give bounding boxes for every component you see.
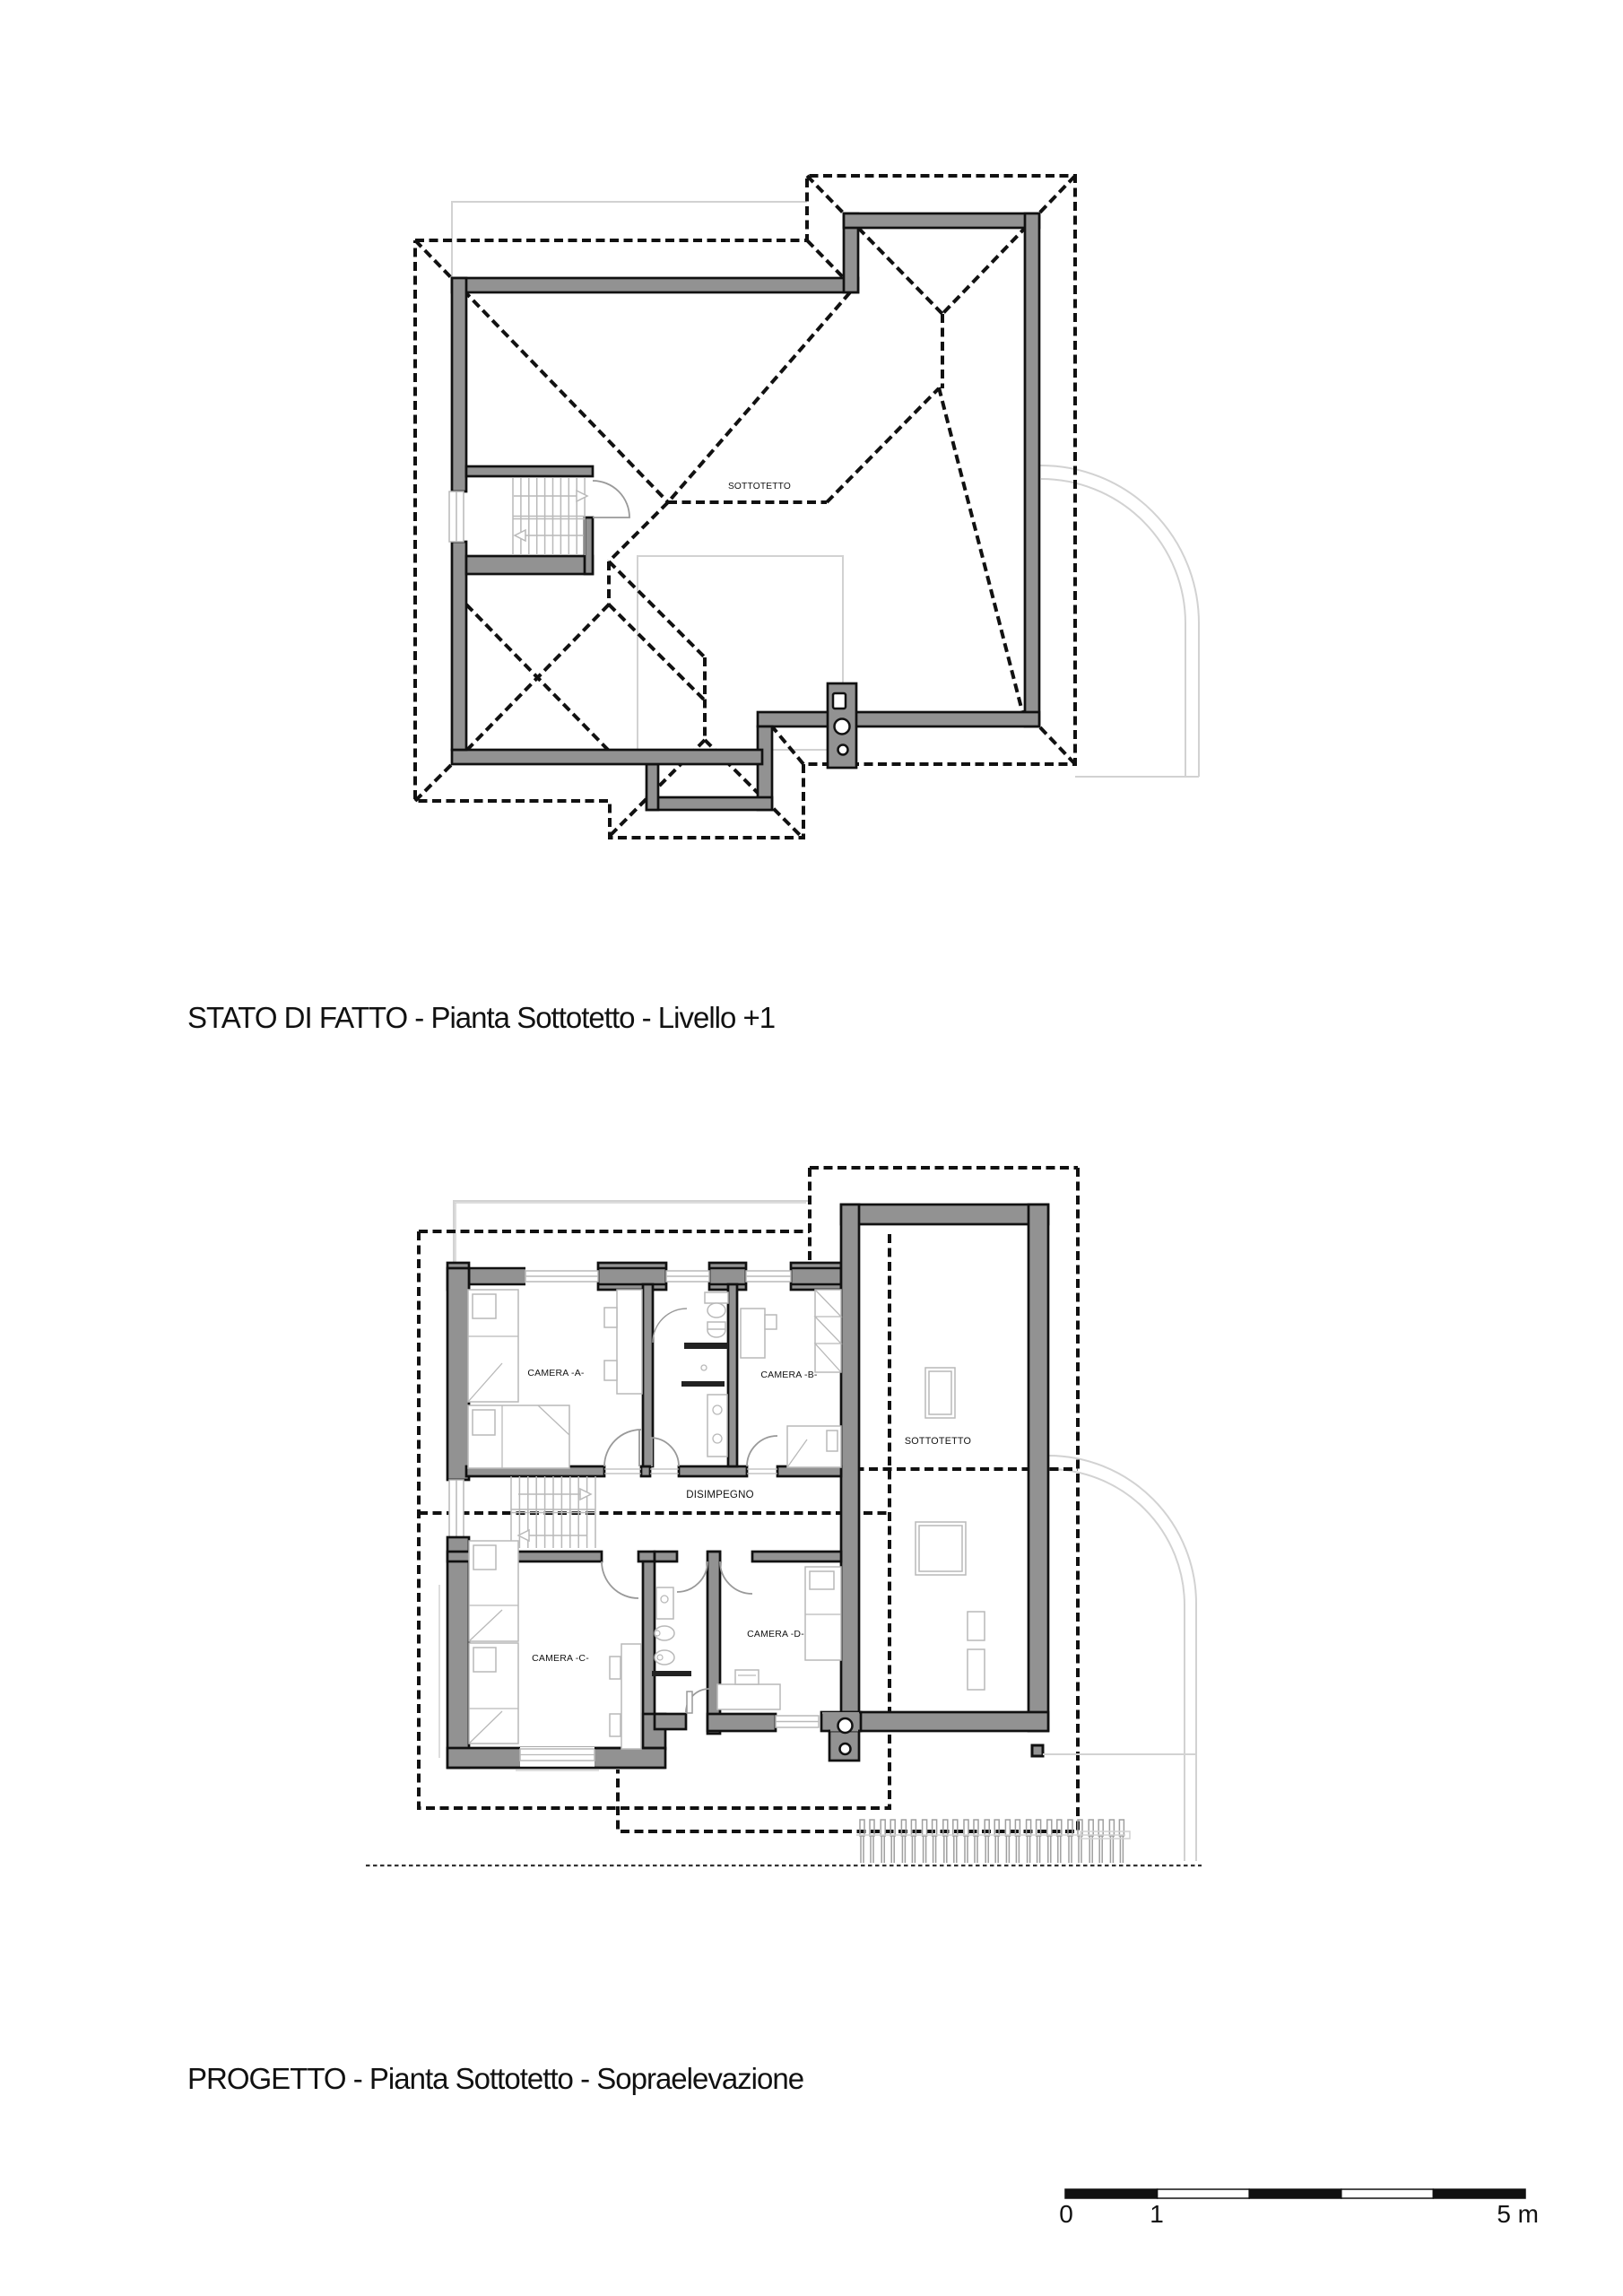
svg-text:SOTTOTETTO: SOTTOTETTO xyxy=(905,1436,971,1447)
svg-text:CAMERA -C-: CAMERA -C- xyxy=(532,1653,589,1664)
svg-text:5 m: 5 m xyxy=(1497,2200,1539,2228)
svg-text:DISIMPEGNO: DISIMPEGNO xyxy=(686,1490,753,1500)
svg-text:CAMERA -D-: CAMERA -D- xyxy=(747,1629,804,1639)
svg-text:PROGETTO - Pianta Sottotetto -: PROGETTO - Pianta Sottotetto - Sopraelev… xyxy=(187,2062,803,2095)
svg-text:CAMERA -A-: CAMERA -A- xyxy=(527,1368,585,1378)
svg-text:SOTTOTETTO: SOTTOTETTO xyxy=(728,482,791,491)
svg-text:STATO DI FATTO - Pianta Sottot: STATO DI FATTO - Pianta Sottotetto - Liv… xyxy=(187,1001,775,1034)
svg-text:0: 0 xyxy=(1059,2200,1073,2228)
svg-text:1: 1 xyxy=(1150,2200,1164,2228)
svg-text:CAMERA -B-: CAMERA -B- xyxy=(760,1370,818,1380)
